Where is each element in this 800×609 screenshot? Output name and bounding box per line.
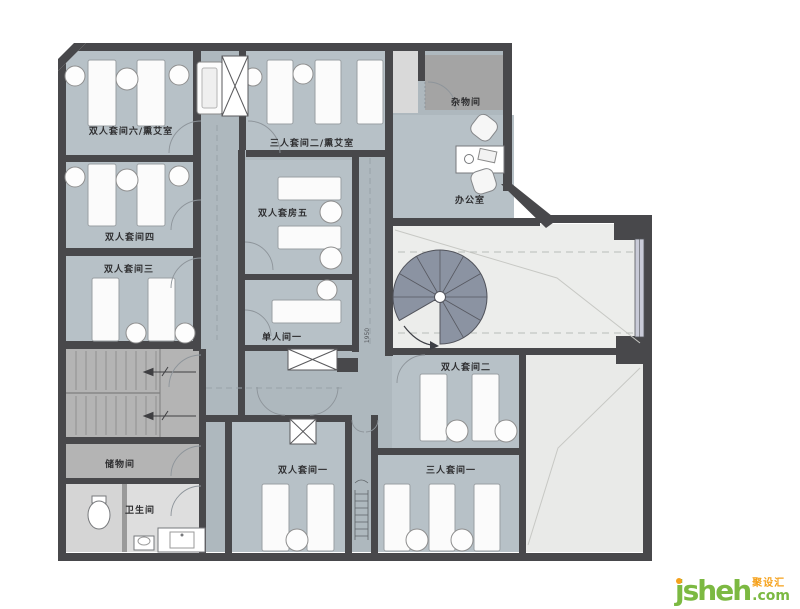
shaft-x-box [222, 56, 248, 116]
sofa [197, 62, 223, 114]
stool [126, 323, 146, 343]
room-label-suite2: 双人套间二 [441, 360, 491, 373]
wardrobe-x-box [290, 419, 316, 444]
squat-toilet [134, 536, 154, 550]
wall-h2 [58, 248, 201, 256]
room-label-office: 办公室 [455, 193, 485, 206]
room-label-storage: 储物间 [105, 457, 135, 470]
stool [317, 280, 337, 300]
wall-bottom [58, 553, 652, 561]
floor-plan: 双人套间六/熏艾室 三人套间二/熏艾室 杂物间 办公室 双人套房五 双人套间四 … [0, 0, 800, 609]
stool [320, 201, 342, 223]
bed [420, 374, 447, 441]
room-label-bath: 卫生间 [125, 503, 155, 516]
room-label-suite4: 双人套间四 [105, 230, 155, 243]
stool [169, 65, 189, 85]
room-label-single1: 单人间一 [262, 330, 302, 343]
toilet [88, 501, 110, 529]
stool [495, 420, 517, 442]
stool [293, 64, 313, 84]
room-label-suite5: 双人套房五 [258, 206, 308, 219]
floor-plan-canvas [0, 0, 800, 609]
faucet [181, 534, 184, 537]
bed [92, 278, 119, 341]
room-label-suite2-3p: 三人套间二/熏艾室 [270, 136, 354, 149]
wall-v6 [345, 415, 352, 561]
room-label-suite3: 双人套间三 [104, 262, 154, 275]
stool [286, 529, 308, 551]
stool [451, 529, 473, 551]
bed [267, 60, 293, 124]
room-label-utility: 杂物间 [451, 95, 481, 108]
stool [116, 68, 138, 90]
jsheh-watermark-logo: jsheh 聚设汇 .com [675, 579, 790, 603]
wall-h1 [58, 155, 201, 162]
bed [88, 60, 116, 126]
stool [320, 247, 342, 269]
wall-office-bottom [385, 218, 540, 226]
logo-name-text: jsheh [675, 574, 750, 607]
bed [278, 177, 341, 200]
wall-h4 [58, 437, 206, 444]
logo-tld-text: .com [752, 589, 790, 603]
window-strip [635, 239, 644, 337]
wall-top [58, 43, 512, 51]
void-bottom-right-floor [526, 355, 643, 552]
dimension-label: 1950 [364, 328, 371, 343]
bed [88, 164, 116, 226]
bed [315, 60, 341, 124]
logo-wordmark: jsheh [675, 579, 750, 603]
light-shaft-floor [392, 51, 418, 113]
wall-v3 [238, 150, 245, 422]
bed [278, 226, 341, 249]
bed [137, 164, 165, 226]
wall-h6 [246, 150, 392, 157]
wall-h11 [371, 448, 526, 455]
bed [137, 60, 165, 126]
closet-x-box [288, 349, 337, 370]
wall-v7 [371, 415, 378, 561]
room-label-suite6: 双人套间六/熏艾室 [89, 124, 173, 137]
wall-hall-block [337, 358, 358, 372]
room-label-suite1-3p: 三人套间一 [426, 463, 476, 476]
wall-h3 [58, 341, 201, 349]
stool [406, 529, 428, 551]
wall-v4 [352, 150, 359, 352]
bed [357, 60, 383, 124]
stool [116, 169, 138, 191]
bed [307, 484, 334, 551]
wall-h5 [58, 478, 206, 484]
wall-h9 [201, 415, 352, 422]
bed [262, 484, 289, 551]
room-storage-floor [66, 444, 206, 478]
bed [474, 484, 500, 551]
stool [169, 166, 189, 186]
wall-h7 [238, 274, 359, 280]
wall-h10 [385, 348, 652, 355]
wall-utility-left [418, 51, 425, 81]
room-label-suite1: 双人套间一 [278, 463, 328, 476]
bed [272, 300, 341, 323]
wall-v5 [385, 51, 393, 356]
stool [65, 66, 85, 86]
wall-corner-block-a [614, 215, 652, 240]
wall-bath-divider [122, 484, 127, 552]
stool [446, 420, 468, 442]
stool [65, 167, 85, 187]
stool [175, 323, 195, 343]
wall-v11 [225, 415, 232, 561]
